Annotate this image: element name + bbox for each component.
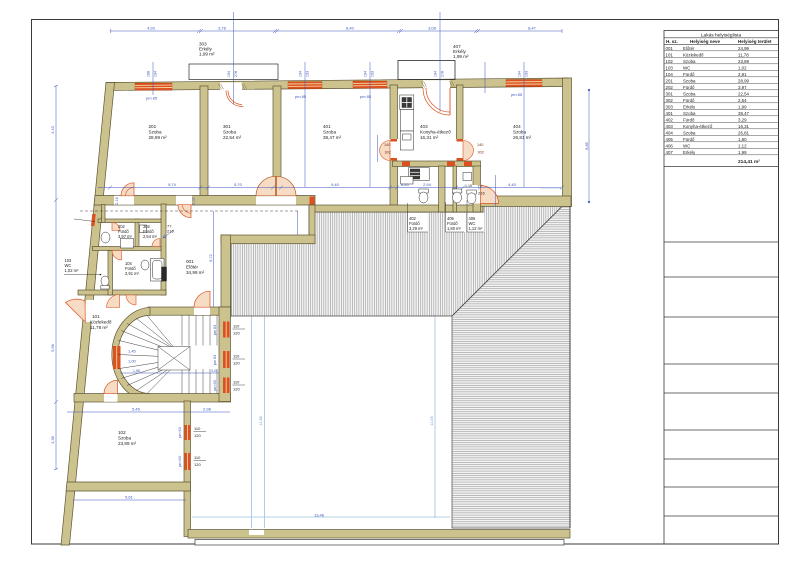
svg-text:193: 193 [525,71,529,77]
svg-text:Előtér: Előtér [186,265,198,270]
svg-text:Fürdő: Fürdő [683,72,695,77]
svg-text:WC: WC [683,143,690,148]
svg-text:Helyiség terület: Helyiség terület [738,39,772,44]
svg-text:9,40: 9,40 [331,182,340,187]
svg-text:6,72: 6,72 [209,254,213,261]
svg-text:301: 301 [223,124,231,129]
svg-text:278: 278 [441,71,445,77]
svg-text:2,16: 2,16 [115,197,119,204]
svg-text:110: 110 [194,455,201,460]
svg-text:3,29 m²: 3,29 m² [409,226,424,231]
svg-text:403: 403 [420,124,428,129]
svg-text:23,89: 23,89 [738,59,750,64]
svg-text:9,74: 9,74 [168,182,177,187]
svg-text:28,99: 28,99 [738,78,750,83]
svg-text:Szoba: Szoba [223,130,236,135]
svg-text:1,19: 1,19 [465,184,472,188]
svg-text:Erkély: Erkély [683,104,696,109]
svg-text:201: 201 [149,124,157,129]
svg-text:1,80: 1,80 [738,137,747,142]
svg-text:2,02: 2,02 [192,197,196,204]
svg-text:3,01: 3,01 [211,369,218,373]
svg-text:pm 85: pm 85 [295,94,307,99]
svg-text:1,80 m²: 1,80 m² [447,226,462,231]
svg-text:Szoba: Szoba [323,130,336,135]
svg-text:24,99: 24,99 [738,46,750,51]
svg-text:1,99: 1,99 [738,150,747,155]
svg-text:11,03: 11,03 [430,416,434,425]
svg-text:5,70: 5,70 [234,182,243,187]
svg-text:102: 102 [118,430,126,435]
svg-text:28,99 m²: 28,99 m² [149,135,168,140]
svg-text:1,02 m²: 1,02 m² [65,268,80,273]
svg-text:16,31: 16,31 [738,124,750,129]
svg-text:194: 194 [227,71,231,77]
svg-text:401: 401 [323,124,331,129]
svg-text:Szoba: Szoba [683,91,696,96]
svg-text:Fürdő: Fürdő [683,137,695,142]
svg-text:194: 194 [364,71,368,77]
svg-text:110: 110 [233,380,240,385]
svg-text:2,98: 2,98 [203,407,212,412]
svg-text:302: 302 [385,151,391,155]
svg-text:22,54: 22,54 [738,91,750,96]
svg-text:405: 405 [666,137,674,142]
svg-text:140: 140 [384,143,390,147]
svg-text:2,94: 2,94 [423,182,432,187]
svg-text:77: 77 [478,184,483,189]
svg-text:302: 302 [666,98,674,103]
svg-text:23,89 m²: 23,89 m² [118,441,137,446]
svg-text:Fürdő: Fürdő [683,117,695,122]
svg-text:120: 120 [194,462,201,467]
svg-text:101: 101 [92,314,100,319]
svg-text:403: 403 [666,124,674,129]
svg-text:pm 63: pm 63 [213,355,217,366]
svg-text:104: 104 [666,72,674,77]
svg-text:Szoba: Szoba [118,436,131,441]
svg-text:1,98: 1,98 [133,369,140,373]
svg-text:001: 001 [666,46,674,51]
svg-text:168: 168 [147,71,151,77]
svg-text:13,46: 13,46 [314,513,325,518]
svg-text:Lakás helyiséglista: Lakás helyiséglista [701,32,742,38]
svg-text:1,45: 1,45 [128,349,137,354]
svg-text:1,99: 1,99 [738,104,747,109]
svg-text:Konyha-étkező: Konyha-étkező [420,130,451,135]
svg-text:110: 110 [194,426,201,431]
svg-text:303: 303 [666,104,674,109]
svg-text:2,54: 2,54 [738,98,747,103]
svg-text:278: 278 [234,71,238,77]
svg-text:11,36: 11,36 [259,416,263,425]
svg-text:5,61: 5,61 [125,495,134,500]
svg-text:Szoba: Szoba [683,130,696,135]
svg-text:1,00: 1,00 [128,359,137,364]
svg-text:Szoba: Szoba [149,130,162,135]
svg-text:8,40: 8,40 [401,182,410,187]
svg-text:202: 202 [666,85,674,90]
svg-text:194: 194 [518,71,522,77]
svg-text:120: 120 [194,433,201,438]
svg-text:1,12: 1,12 [738,143,747,148]
svg-text:2,54 m²: 2,54 m² [143,234,158,239]
svg-text:3,08: 3,08 [428,26,437,31]
svg-text:Közlekedő: Közlekedő [90,320,112,325]
svg-text:001: 001 [186,259,194,264]
svg-text:5,98: 5,98 [51,344,55,351]
svg-text:193: 193 [306,71,310,77]
svg-text:Fürdő: Fürdő [683,98,695,103]
svg-text:214,41 m²: 214,41 m² [738,159,760,165]
svg-text:404: 404 [666,130,674,135]
svg-text:404: 404 [513,124,521,129]
svg-text:194: 194 [434,71,438,77]
svg-text:407: 407 [666,150,674,155]
svg-text:26,81: 26,81 [738,130,750,135]
svg-text:Szoba: Szoba [683,78,696,83]
svg-text:Szoba: Szoba [683,111,696,116]
svg-text:110: 110 [233,354,240,359]
svg-text:2,91: 2,91 [738,72,747,77]
svg-text:Közlekedő: Közlekedő [683,52,704,57]
svg-text:4,38: 4,38 [51,436,55,443]
svg-text:pm 85: pm 85 [146,96,158,101]
svg-text:Szoba: Szoba [513,130,526,135]
svg-text:8,85: 8,85 [585,142,589,149]
svg-text:2,91 m²: 2,91 m² [125,271,140,276]
svg-text:Konyha-étkező: Konyha-étkező [683,124,713,129]
svg-text:16,31 m²: 16,31 m² [420,135,439,140]
svg-text:140: 140 [477,143,483,147]
svg-text:1,02: 1,02 [738,65,747,70]
svg-text:pm 63: pm 63 [178,427,182,438]
svg-text:101: 101 [666,52,674,57]
svg-text:26,81 m²: 26,81 m² [513,135,532,140]
svg-text:Előtér: Előtér [683,46,695,51]
svg-text:pm 63: pm 63 [213,325,217,336]
svg-text:120: 120 [233,331,240,336]
svg-text:38,47 m²: 38,47 m² [323,135,342,140]
svg-text:120: 120 [233,387,240,392]
svg-text:11,78 m²: 11,78 m² [90,325,108,330]
svg-text:8,40: 8,40 [346,26,355,31]
svg-text:WC: WC [683,65,690,70]
svg-text:3,97: 3,97 [738,85,747,90]
svg-text:302: 302 [478,151,484,155]
svg-text:194: 194 [154,71,158,77]
svg-text:301: 301 [666,91,674,96]
svg-text:1,99 m²: 1,99 m² [453,54,469,59]
svg-text:11,78: 11,78 [738,52,749,57]
svg-text:Szoba: Szoba [683,59,696,64]
svg-text:Fürdő: Fürdő [683,85,695,90]
svg-text:193: 193 [371,71,375,77]
svg-text:102: 102 [666,59,674,64]
svg-text:pm 63: pm 63 [178,456,182,467]
svg-text:8,47: 8,47 [528,26,537,31]
svg-text:3,97 m²: 3,97 m² [118,234,133,239]
svg-text:216: 216 [167,229,174,234]
svg-text:406: 406 [666,143,674,148]
svg-text:pm 85: pm 85 [360,94,372,99]
svg-text:402: 402 [666,117,674,122]
svg-text:4,43: 4,43 [51,126,55,133]
svg-text:22,54 m²: 22,54 m² [223,135,242,140]
svg-text:Erkély: Erkély [683,150,696,155]
svg-text:34,99 m²: 34,99 m² [186,270,205,275]
svg-text:103: 103 [666,65,674,70]
svg-text:4,40: 4,40 [508,182,517,187]
svg-text:4,93: 4,93 [147,26,156,31]
svg-text:401: 401 [666,111,674,116]
svg-text:216: 216 [478,191,485,196]
svg-text:110: 110 [233,324,240,329]
svg-text:Helyiség neve: Helyiség neve [690,39,721,44]
svg-text:1,99 m²: 1,99 m² [199,52,215,57]
svg-text:38,47: 38,47 [738,111,750,116]
svg-text:3,29: 3,29 [738,117,747,122]
svg-text:3,78: 3,78 [218,26,227,31]
svg-text:5,45: 5,45 [132,407,141,412]
svg-text:H. sz.: H. sz. [666,39,678,44]
svg-text:194: 194 [299,71,303,77]
svg-text:201: 201 [666,78,674,83]
svg-text:1,12 m²: 1,12 m² [469,226,484,231]
svg-text:pm 63: pm 63 [213,380,217,391]
svg-text:pm 85: pm 85 [511,92,523,97]
svg-text:120: 120 [233,361,240,366]
